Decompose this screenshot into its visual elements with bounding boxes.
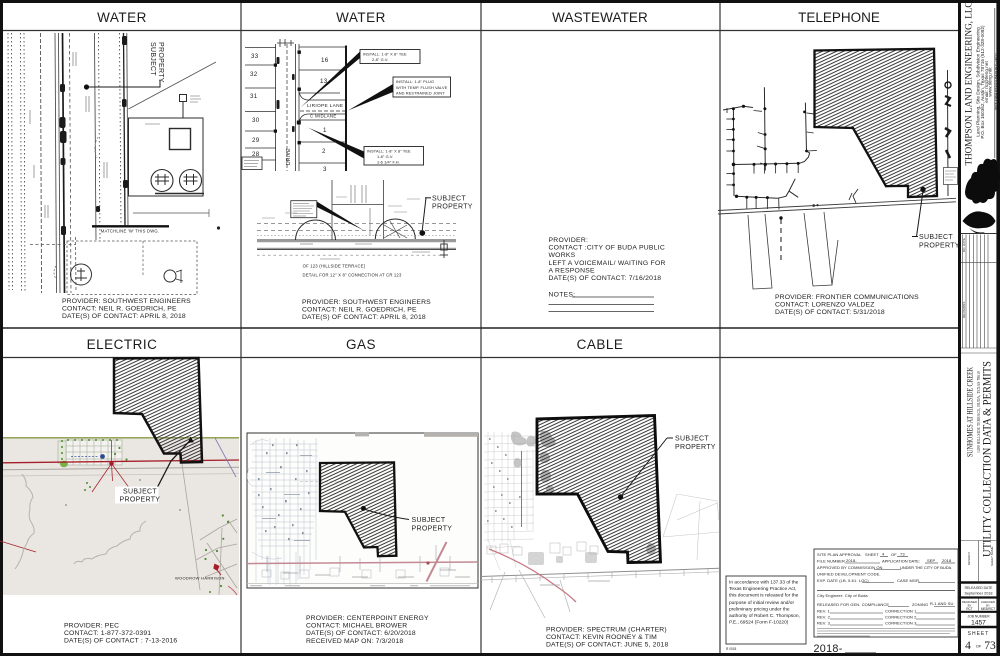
svg-text:2-8" G.V.: 2-8" G.V.	[372, 57, 388, 62]
svg-text:CABLE: CABLE	[577, 337, 624, 352]
svg-text:SUBJECT: SUBJECT	[675, 436, 709, 443]
svg-text:SUBJECT: SUBJECT	[412, 517, 446, 524]
svg-text:PROVIDER: SPECTRUM (CHARTER): PROVIDER: SPECTRUM (CHARTER)	[546, 627, 667, 634]
svg-text:WITH TEMP. FLUSH VALVE: WITH TEMP. FLUSH VALVE	[396, 85, 448, 90]
svg-text:DATE(S) OF CONTACT: APRIL 8,: DATE(S) OF CONTACT: APRIL 8, 2018	[62, 313, 186, 320]
svg-text:SUBJECT: SUBJECT	[149, 42, 156, 76]
svg-text:DATE(S) OF CONTACT: APRIL 8,: DATE(S) OF CONTACT: APRIL 8, 2018	[302, 314, 426, 321]
svg-text:CONTACT: KEVIN ROONEY & TIM: CONTACT: KEVIN ROONEY & TIM	[546, 634, 657, 641]
svg-text:PROVIDER: CENTERPOINT ENERGY: PROVIDER: CENTERPOINT ENERGY	[306, 615, 429, 622]
svg-text:ZONING: ZONING	[912, 602, 928, 607]
svg-text:1: 1	[323, 127, 327, 134]
svg-text:INSTALL: 1-8" PLUG: INSTALL: 1-8" PLUG	[396, 79, 434, 84]
svg-text:SUBJECT: SUBJECT	[919, 234, 953, 241]
svg-text:CORRECTION 1: CORRECTION 1	[885, 609, 917, 614]
svg-text:PROVIDER: FRONTIER COMMUNICAT: PROVIDER: FRONTIER COMMUNICATIONS	[775, 294, 919, 301]
svg-text:PROPERTY: PROPERTY	[432, 204, 473, 211]
svg-text:DRIVE: DRIVE	[286, 148, 292, 165]
svg-text:September 2018: September 2018	[964, 592, 992, 596]
svg-text:DETAIL FOR 12" X 8" CONNECTION: DETAIL FOR 12" X 8" CONNECTION AT CR 123	[302, 273, 401, 278]
svg-text:PROPERTY: PROPERTY	[120, 497, 161, 504]
svg-text:DATE(S) OF CONTACT : 7-13-201: DATE(S) OF CONTACT : 7-13-2016	[64, 638, 177, 645]
svg-text:Texas Engineering Practice Act: Texas Engineering Practice Act,	[729, 586, 796, 592]
svg-text:DATE(S) OF CONTACT: JUNE 5, 2: DATE(S) OF CONTACT: JUNE 5, 2018	[546, 642, 668, 649]
svg-text:R-1 AND SU: R-1 AND SU	[930, 601, 953, 606]
svg-text:CASE MGR.: CASE MGR.	[897, 578, 920, 583]
svg-text:2: 2	[322, 148, 326, 155]
svg-text:ELECTRIC: ELECTRIC	[87, 337, 158, 352]
svg-text:WATER: WATER	[336, 10, 386, 25]
svg-text:PROPERTY: PROPERTY	[157, 42, 164, 83]
svg-text:P.E., 69524 (Form F-10220): P.E., 69524 (Form F-10220)	[729, 620, 789, 626]
svg-text:WASTEWATER: WASTEWATER	[552, 10, 648, 25]
svg-text:CONTACT: 1-877-372-0391: CONTACT: 1-877-372-0391	[64, 630, 151, 637]
svg-text:A RESPONSE: A RESPONSE	[549, 267, 596, 274]
svg-text:preliminary pricing under the: preliminary pricing under the	[729, 607, 790, 613]
svg-text:CONTACT: LORENZO VALDEZ: CONTACT: LORENZO VALDEZ	[775, 302, 875, 309]
svg-text:SITE PLAN APPROVAL: SITE PLAN APPROVAL	[817, 552, 862, 557]
svg-text:this document is released for: this document is released for the	[729, 593, 799, 599]
svg-text:EXP. DATE (LB. 5.61. LOC): EXP. DATE (LB. 5.61. LOC)	[817, 578, 869, 583]
svg-text:authority of Robert C. Thompso: authority of Robert C. Thompson,	[729, 613, 800, 619]
svg-text:WORKS: WORKS	[549, 252, 576, 259]
svg-text:TELEPHONE: TELEPHONE	[798, 10, 880, 25]
svg-text:FILE NUMBER: FILE NUMBER	[817, 559, 845, 564]
svg-text:SHEET: SHEET	[865, 552, 879, 557]
svg-text:DATE(S) OF CONTACT: 5/31/201: DATE(S) OF CONTACT: 5/31/2018	[775, 309, 885, 316]
svg-text:OF: OF	[891, 552, 897, 557]
svg-text:City Engineer: City of Buda: City Engineer: City of Buda	[817, 593, 868, 598]
svg-text:THOMPSON LAND ENGINEERING, LLC: THOMPSON LAND ENGINEERING, LLC	[964, 2, 974, 166]
svg-text:2018-: 2018-	[814, 643, 843, 655]
svg-text:R 0018: R 0018	[726, 647, 737, 651]
svg-text:CONTACT: NEIL R. GOEDRICH, PE: CONTACT: NEIL R. GOEDRICH, PE	[62, 306, 177, 313]
svg-text:LEFT A VOICEMAIL/ WAITING FOR: LEFT A VOICEMAIL/ WAITING FOR	[549, 260, 666, 267]
svg-text:DATE(S) OF CONTACT: 7/16/2018: DATE(S) OF CONTACT: 7/16/2018	[549, 275, 662, 282]
svg-text:CONTACT :CITY OF BUDA PUBLIC: CONTACT :CITY OF BUDA PUBLIC	[549, 245, 666, 252]
svg-text:REV. 3: REV. 3	[817, 621, 831, 626]
svg-text:1-8" G.V.: 1-8" G.V.	[377, 154, 393, 159]
svg-text:TBPE FIRM REGISTRATION F-14657: TBPE FIRM REGISTRATION F-14657	[994, 53, 998, 111]
svg-text:C MIDLANE: C MIDLANE	[310, 114, 337, 119]
svg-text:16: 16	[321, 57, 329, 64]
svg-text:PROVIDER: SOUTHWEST ENGINEERS: PROVIDER: SOUTHWEST ENGINEERS	[62, 298, 191, 305]
svg-text:DATE(S) OF CONTACT: 6/20/2018: DATE(S) OF CONTACT: 6/20/2018	[306, 630, 416, 637]
svg-text:NOTES:: NOTES:	[549, 292, 576, 299]
svg-text:4: 4	[965, 640, 971, 652]
svg-text:INSTALL: 1-8" X 8" TEE: INSTALL: 1-8" X 8" TEE	[367, 149, 411, 154]
svg-text:SUBJECT: SUBJECT	[432, 196, 466, 203]
svg-text:CONTACT: NEIL R. GOEDRICH, PE: CONTACT: NEIL R. GOEDRICH, PE	[302, 307, 417, 314]
svg-text:www.tleng.net: www.tleng.net	[988, 67, 993, 97]
svg-text:GAS: GAS	[346, 337, 376, 352]
svg-text:PROVIDER:: PROVIDER:	[549, 237, 589, 244]
svg-text:2018: 2018	[942, 558, 952, 563]
svg-text:WOODROW HARRISON: WOODROW HARRISON	[175, 576, 225, 581]
svg-text:REV. 1: REV. 1	[817, 609, 831, 614]
svg-text:REV. 2: REV. 2	[817, 615, 831, 620]
svg-text:MEB/RCT: MEB/RCT	[981, 607, 995, 611]
svg-text:PROVIDER: SOUTHWEST ENGINEERS: PROVIDER: SOUTHWEST ENGINEERS	[302, 299, 431, 306]
svg-text:73: 73	[900, 552, 905, 557]
svg-text:APPROVED BY COMMISSION ON: APPROVED BY COMMISSION ON	[817, 565, 883, 570]
svg-text:AND RESTRAINED JOINT: AND RESTRAINED JOINT	[396, 91, 445, 96]
svg-text:OF 123 (HILLSIDE TERRACE): OF 123 (HILLSIDE TERRACE)	[303, 264, 366, 269]
svg-text:29: 29	[252, 137, 260, 144]
svg-text:RELEASED FOR GEN. COMPLIANCE: RELEASED FOR GEN. COMPLIANCE	[817, 602, 889, 607]
svg-text:32: 32	[250, 71, 258, 78]
svg-text:UTILITY COLLECTION DATA & PERM: UTILITY COLLECTION DATA & PERMITS	[980, 361, 994, 557]
svg-text:CORRECTION 2: CORRECTION 2	[885, 615, 917, 620]
svg-text:WATER: WATER	[97, 10, 147, 25]
svg-text:SHEET NAME: SHEET NAME	[990, 547, 994, 566]
svg-text:1-6 1/4" F.H.: 1-6 1/4" F.H.	[377, 160, 400, 165]
svg-text:PROPERTY: PROPERTY	[675, 444, 716, 451]
svg-text:30: 30	[252, 117, 260, 124]
svg-text:APPLICATION DATE:: APPLICATION DATE:	[882, 559, 920, 564]
svg-text:NO. DATE: NO. DATE	[962, 238, 966, 252]
svg-text:SHEET: SHEET	[968, 631, 990, 637]
svg-text:LIRIOPE LANE: LIRIOPE LANE	[307, 103, 343, 109]
svg-text:RCT: RCT	[966, 607, 973, 611]
svg-text:UNIFIED DEVELOPMENT CODE.: UNIFIED DEVELOPMENT CODE.	[817, 572, 881, 577]
svg-text:CORRECTION 3: CORRECTION 3	[885, 621, 917, 626]
svg-text:2018-: 2018-	[846, 558, 857, 563]
svg-text:purpose of initial review and/: purpose of initial review and/or	[729, 600, 794, 606]
svg-text:PROPERTY: PROPERTY	[919, 243, 960, 250]
svg-text:SEP: SEP	[927, 558, 936, 563]
svg-text:31: 31	[250, 93, 258, 100]
svg-text:73: 73	[984, 640, 996, 652]
svg-text:SUBJECT: SUBJECT	[123, 489, 157, 496]
svg-text:JOB NUMBER: JOB NUMBER	[967, 615, 990, 619]
svg-text:PROPERTY: PROPERTY	[412, 526, 453, 533]
svg-text:CONTACT: MICHAEL BROWER: CONTACT: MICHAEL BROWER	[306, 623, 407, 630]
svg-text:MATCHLINE 'W' THIS DWG.: MATCHLINE 'W' THIS DWG.	[101, 229, 159, 234]
svg-text:OF: OF	[976, 644, 982, 649]
svg-text:UNDER THE CITY OF BUDA: UNDER THE CITY OF BUDA	[900, 565, 952, 570]
svg-text:3: 3	[323, 166, 327, 173]
svg-text:INSTALL: 1-8" X 8" TEE: INSTALL: 1-8" X 8" TEE	[363, 52, 407, 57]
svg-text:PROVIDER: PEC: PROVIDER: PEC	[64, 623, 119, 630]
svg-text:REVISIONS: REVISIONS	[962, 302, 966, 318]
svg-text:RELEASED DATE: RELEASED DATE	[965, 586, 994, 590]
svg-text:33: 33	[251, 53, 259, 60]
svg-text:In accordance with 137.33 of: In accordance with 137.33 of the	[729, 580, 799, 586]
svg-text:DESIGN I: DESIGN I	[967, 552, 971, 565]
svg-text:RECEIVED MAP ON: 7/3/2018: RECEIVED MAP ON: 7/3/2018	[306, 638, 403, 645]
svg-text:SUNHOMES AT HILLSIDE CREEK: SUNHOMES AT HILLSIDE CREEK	[966, 367, 975, 457]
svg-text:1457: 1457	[971, 620, 986, 627]
